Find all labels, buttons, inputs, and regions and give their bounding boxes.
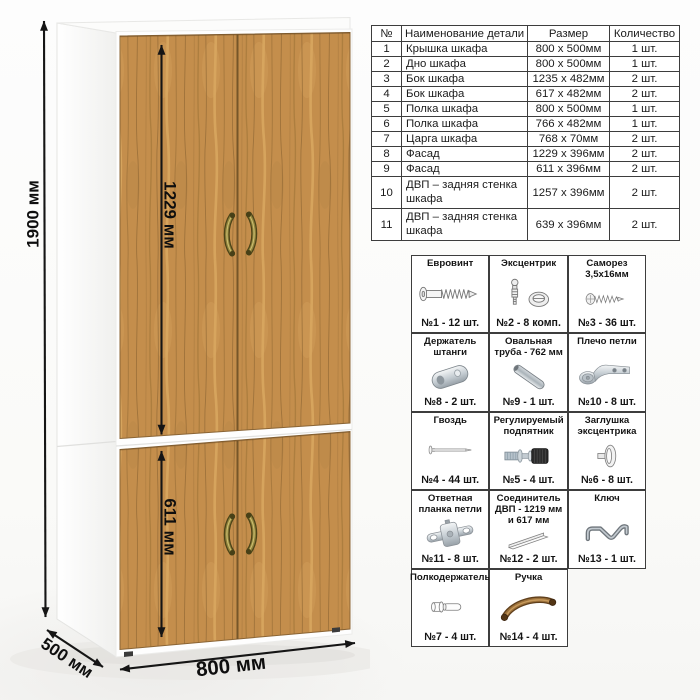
hardware-item-eccentric: Эксцентрик №2 - 8 комп. (489, 255, 567, 333)
parts-table-header: № Наименование детали Размер Количество (372, 26, 680, 42)
side-panel (57, 23, 116, 657)
hardware-item-handle: Ручка №14 - 4 шт. (489, 569, 567, 647)
table-row: 8Фасад1229 x 396мм2 шт. (372, 147, 680, 162)
lower-door-dimension-label: 611 мм (161, 498, 180, 555)
table-row: 6Полка шкафа766 x 482мм1 шт. (372, 117, 680, 132)
nail-icon (414, 437, 486, 463)
foot-left (124, 651, 133, 657)
table-row: 1Крышка шкафа800 x 500мм1 шт. (372, 42, 680, 57)
rod-holder-icon (414, 362, 486, 392)
tapping-screw-icon (571, 286, 643, 312)
euro-screw-icon (414, 278, 486, 310)
col-size: Размер (528, 26, 610, 42)
lower-doors (120, 432, 350, 650)
hardware-item-oval-tube: Овальная труба - 762 мм №9 - 1 шт. (489, 333, 567, 411)
shelf-pin-icon (414, 594, 486, 620)
hardware-item-tapping-screw: Саморез 3,5х16мм №3 - 36 шт. (568, 255, 646, 333)
hardware-item-nail: Гвоздь №4 - 44 шт. (411, 412, 489, 490)
col-part-name: Наименование детали (402, 26, 528, 42)
col-number: № (372, 26, 402, 42)
wardrobe-diagram: 1900 мм 1229 мм 611 мм 800 мм 500 мм (0, 0, 370, 700)
hardware-item-euro-screw: Евровинт №1 - 12 шт. (411, 255, 489, 333)
foot-right (332, 627, 340, 632)
adjustable-foot-icon (493, 442, 565, 470)
hardware-item-rod-holder: Держатель штанги №8 - 2 шт. (411, 333, 489, 411)
col-quantity: Количество (610, 26, 680, 42)
eccentric-cam-icon (493, 278, 565, 310)
table-row: 3Бок шкафа1235 x 482мм2 шт. (372, 72, 680, 87)
hardware-grid: Евровинт №1 - 12 шт. Эксцентрик (411, 255, 647, 647)
cam-cap-icon (571, 441, 643, 471)
hardware-item-shelf-pin: Полкодержатель №7 - 4 шт. (411, 569, 489, 647)
hex-key-icon (571, 514, 643, 544)
parts-table: № Наименование детали Размер Количество … (371, 25, 680, 241)
handle-icon (493, 590, 565, 624)
hdf-connector-icon (493, 527, 565, 551)
height-dimension: 1900 мм (24, 21, 46, 617)
hardware-item-hdf-connector: Соединитель ДВП - 1219 мм и 617 мм №12 -… (489, 490, 567, 568)
table-row: 4Бок шкафа617 x 482мм2 шт. (372, 87, 680, 102)
furniture-assembly-sheet: 1900 мм 1229 мм 611 мм 800 мм 500 мм № Н… (0, 0, 700, 700)
table-row: 7Царга шкафа768 x 70мм2 шт. (372, 132, 680, 147)
hardware-item-adjustable-foot: Регулируемый подпятник №5 - 4 шт. (489, 412, 567, 490)
hardware-item-hinge-arm: Плечо петли №10 - 8 шт. (568, 333, 646, 411)
upper-door-dimension-label: 1229 мм (161, 181, 180, 249)
table-row: 11ДВП – задняя стенка шкафа639 x 396мм2 … (372, 209, 680, 241)
hinge-plate-icon (414, 519, 486, 549)
table-row: 2Дно шкафа800 x 500мм1 шт. (372, 57, 680, 72)
upper-doors (120, 33, 350, 439)
hinge-arm-icon (571, 357, 643, 387)
hardware-item-hex-key: Ключ №13 - 1 шт. (568, 490, 646, 568)
table-row: 10ДВП – задняя стенка шкафа1257 x 396мм2… (372, 177, 680, 209)
oval-tube-icon (493, 362, 565, 392)
hardware-item-cam-cap: Заглушка эксцентрика №6 - 8 шт. (568, 412, 646, 490)
height-dimension-label: 1900 мм (24, 180, 43, 248)
hardware-item-hinge-plate: Ответная планка петли №11 - 8 шт. (411, 490, 489, 568)
table-row: 9Фасад611 x 396мм2 шт. (372, 162, 680, 177)
table-row: 5Полка шкафа800 x 500мм1 шт. (372, 102, 680, 117)
